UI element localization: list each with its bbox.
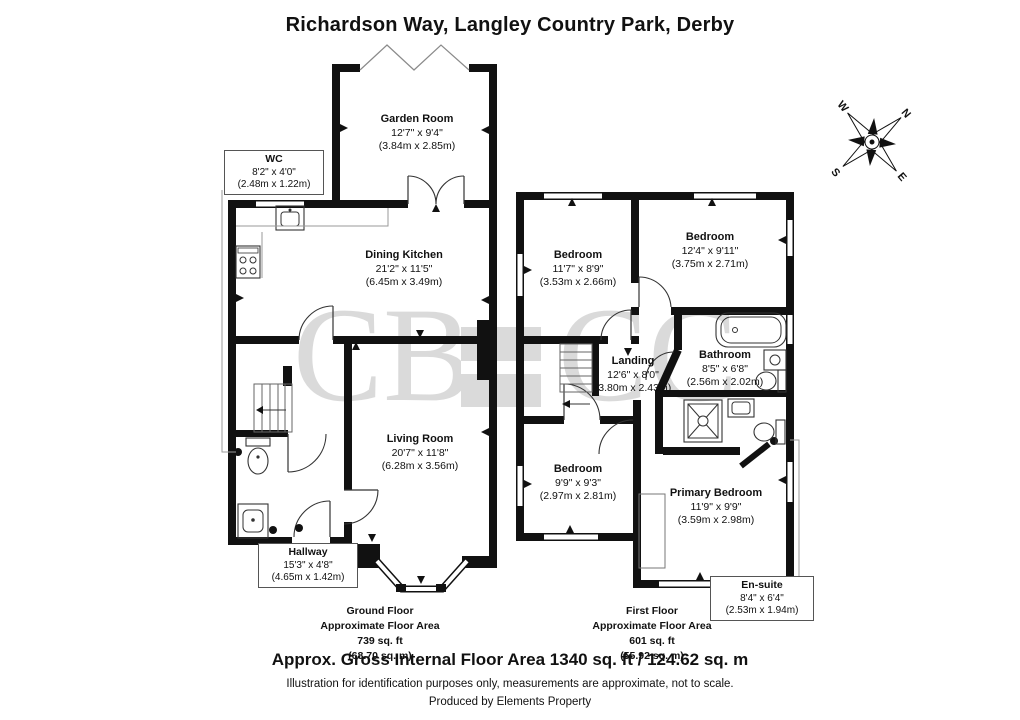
producer-credit: Produced by Elements Property (0, 696, 1020, 708)
room-label-hallway: Hallway 15'3" x 4'8" (4.65m x 1.42m) (258, 543, 358, 588)
total-floor-area: Approx. Gross Internal Floor Area 1340 s… (0, 650, 1020, 670)
compass-rose: N E S W (798, 71, 943, 215)
room-label-wc: WC 8'2" x 4'0" (2.48m x 1.22m) (224, 150, 324, 195)
compass-east-label: E (895, 171, 909, 184)
room-label-bedroom-2: Bedroom 12'4" x 9'11" (3.75m x 2.71m) (635, 230, 785, 272)
page-title: Richardson Way, Langley Country Park, De… (0, 14, 1020, 37)
compass-west-label: W (835, 99, 851, 115)
room-label-en-suite: En-suite 8'4" x 6'4" (2.53m x 1.94m) (710, 576, 814, 621)
floor-plan-canvas: N E S W (0, 0, 1020, 720)
room-label-bedroom-3: Bedroom 9'9" x 9'3" (2.97m x 2.81m) (503, 462, 653, 504)
compass-south-label: S (828, 166, 842, 179)
room-label-garden-room: Garden Room 12'7" x 9'4" (3.84m x 2.85m) (342, 112, 492, 154)
floorplan-page: Richardson Way, Langley Country Park, De… (0, 0, 1020, 720)
room-label-bedroom-1: Bedroom 11'7" x 8'9" (3.53m x 2.66m) (503, 248, 653, 290)
disclaimer: Illustration for identification purposes… (0, 678, 1020, 690)
room-label-dining-kitchen: Dining Kitchen 21'2" x 11'5" (6.45m x 3.… (329, 248, 479, 290)
room-label-bathroom: Bathroom 8'5" x 6'8" (2.56m x 2.02m) (650, 348, 800, 390)
room-label-living-room: Living Room 20'7" x 11'8" (6.28m x 3.56m… (345, 432, 495, 474)
room-label-primary-bedroom: Primary Bedroom 11'9" x 9'9" (3.59m x 2.… (641, 486, 791, 528)
